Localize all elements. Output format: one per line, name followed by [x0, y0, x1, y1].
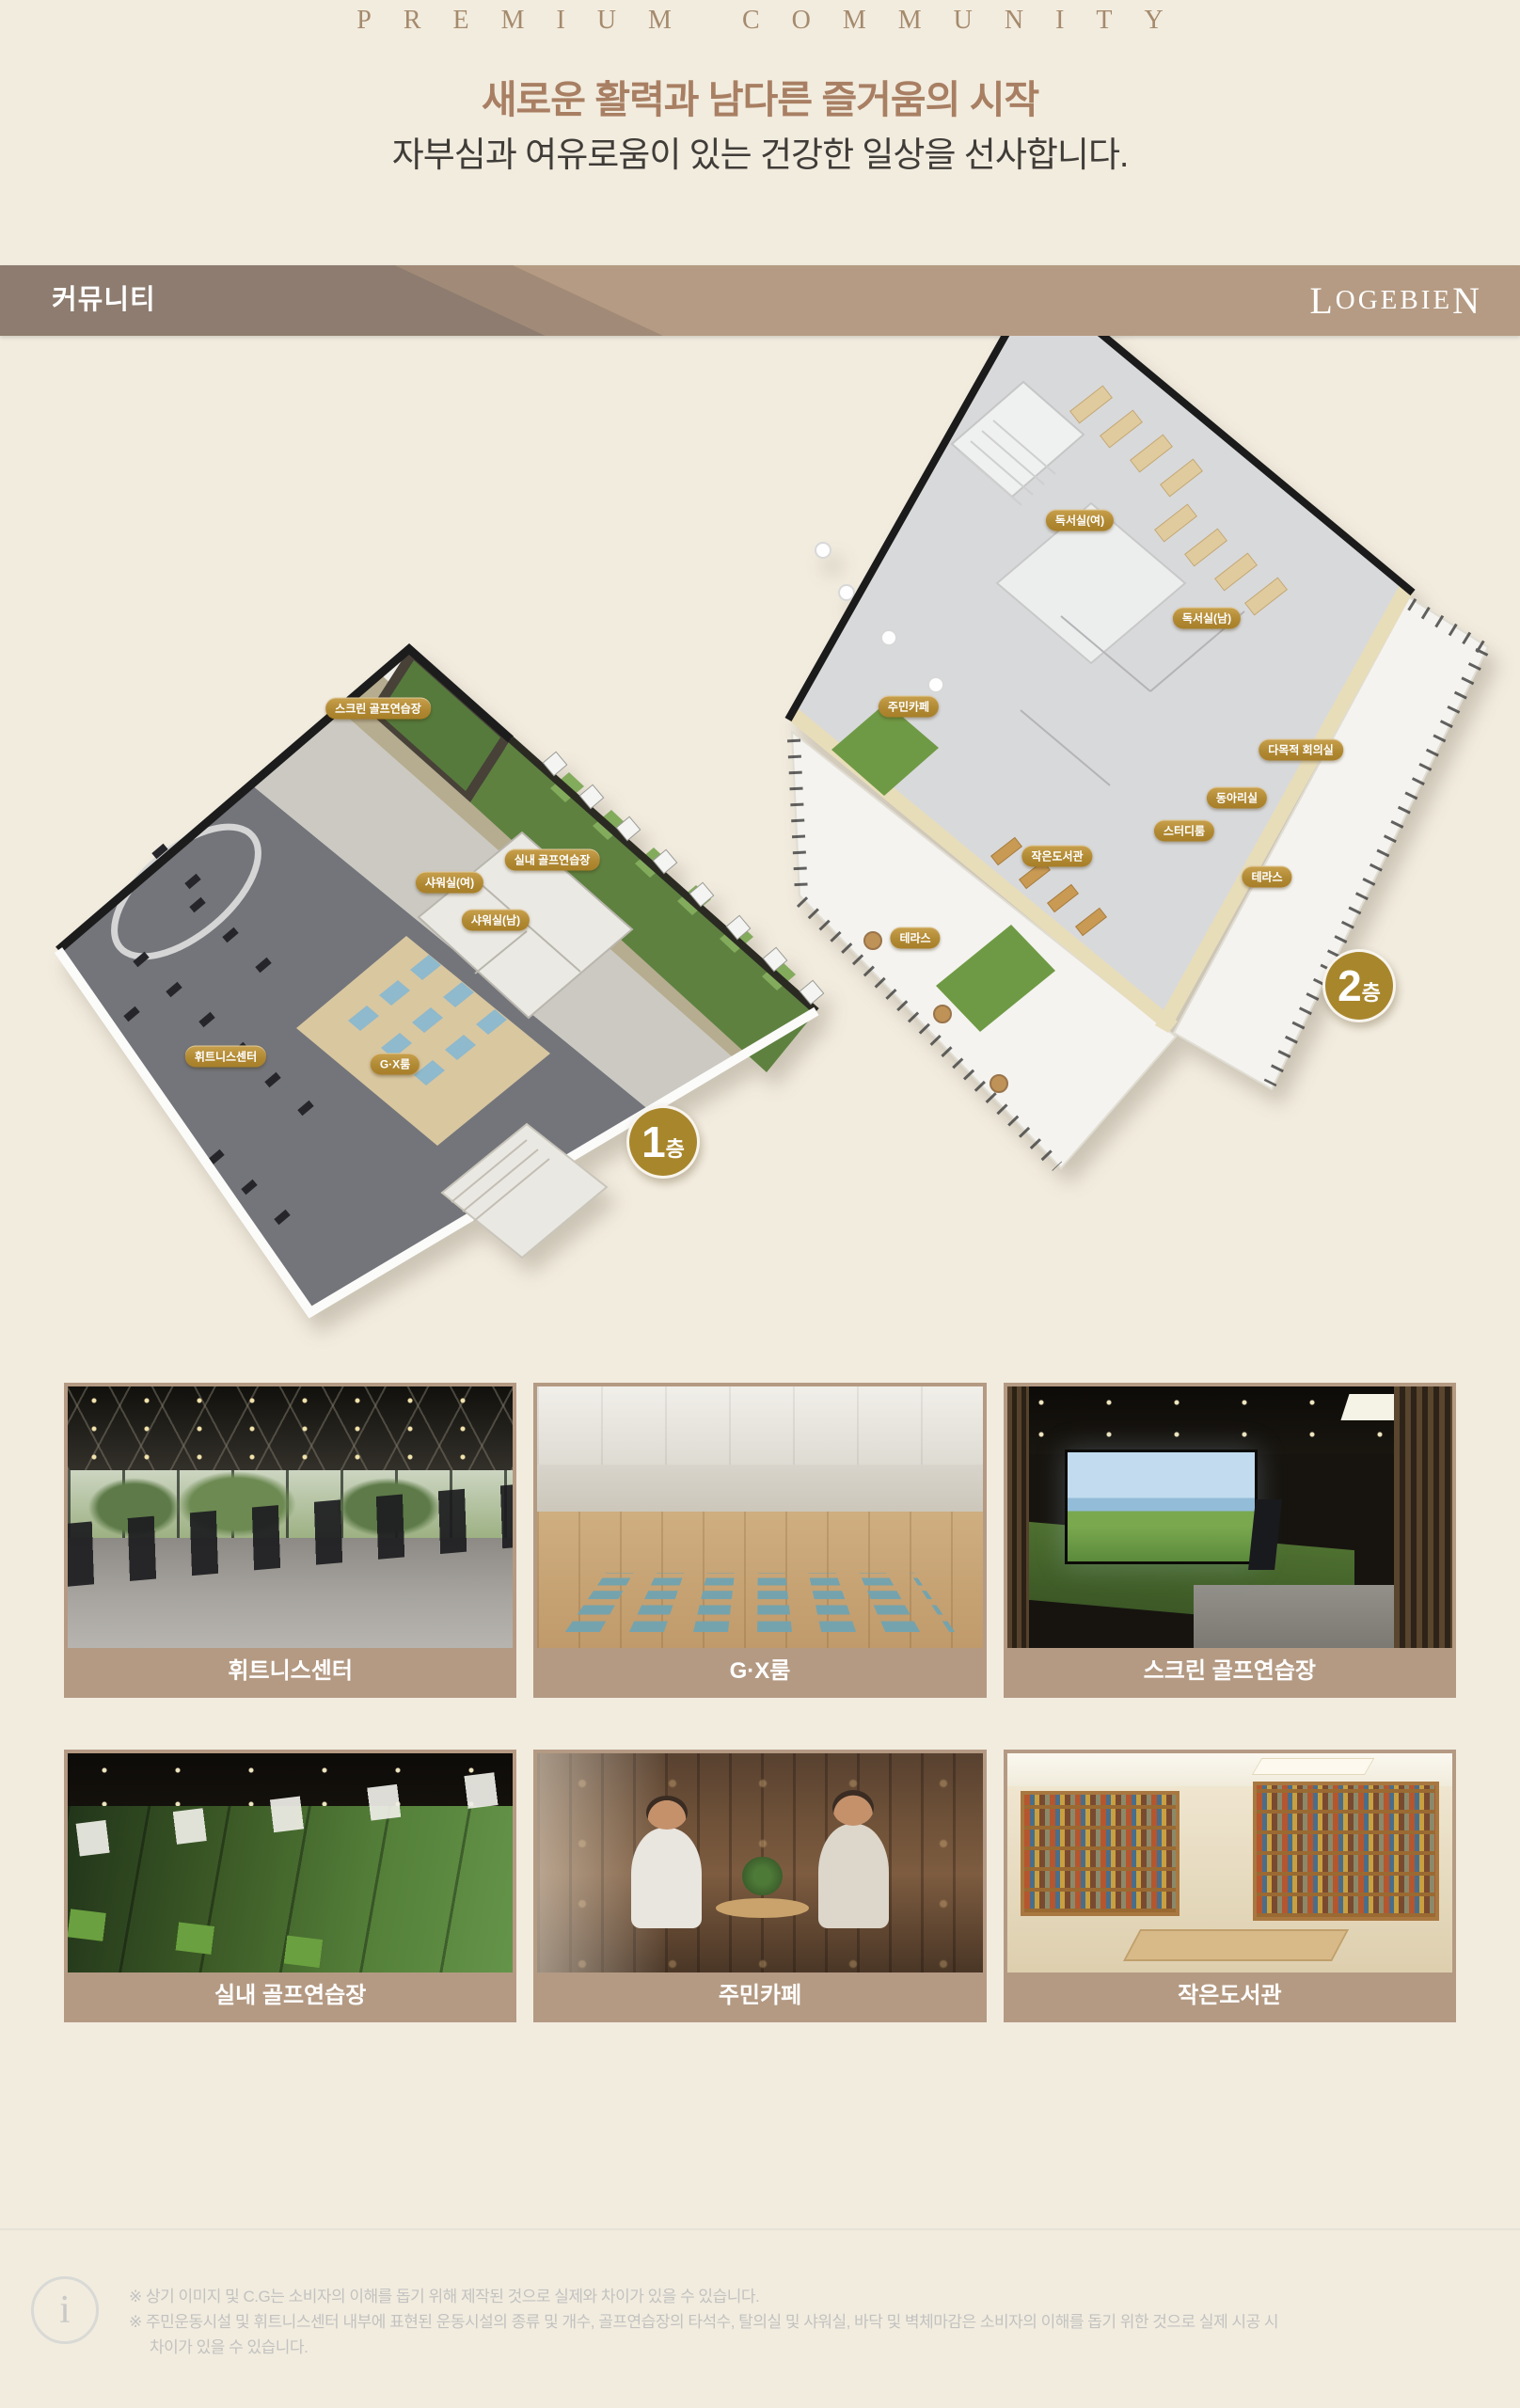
logo-letters-mid: OGEBIE: [1336, 265, 1452, 336]
plan-label-shower-women: 샤워실(여): [416, 872, 483, 894]
photo-reading-table: [1123, 1929, 1349, 1961]
photo-wood-slats-right: [1394, 1386, 1452, 1648]
photo-person-head: [832, 1790, 874, 1826]
photo-caption: G·X룸: [537, 1648, 982, 1694]
floorplan-section: 스크린 골프연습장 실내 골프연습장 샤워실(여) 샤워실(남) 휘트니스센터 …: [0, 336, 1520, 1386]
plan-label-gx-room: G·X룸: [371, 1053, 420, 1075]
floor1-badge-unit: 층: [666, 1133, 685, 1163]
plan-label-shower-men: 샤워실(남): [462, 910, 530, 931]
floor1-slab: [58, 649, 824, 1312]
fitness-center-photo: [68, 1386, 513, 1648]
photo-bookshelf-right: [1253, 1782, 1438, 1921]
gallery-card-gx-room: G·X룸: [533, 1383, 986, 1698]
residents-cafe-photo: [537, 1753, 982, 1972]
plan-label-reading-room-women: 독서실(여): [1046, 510, 1114, 531]
plan-label-reading-room-men: 독서실(남): [1173, 608, 1241, 629]
footnote-line-1: ※ 상기 이미지 및 C.G는 소비자의 이해를 돕기 위해 제작된 것으로 실…: [129, 2284, 1278, 2309]
plan-label-terrace-right: 테라스: [1242, 866, 1291, 888]
info-icon: i: [31, 2276, 99, 2344]
gallery-card-library: 작은도서관: [1004, 1750, 1456, 2022]
photo-person-left: [631, 1828, 703, 1928]
photo-ceiling: [68, 1386, 513, 1470]
photo-caption: 스크린 골프연습장: [1007, 1648, 1452, 1694]
footnotes: ※ 상기 이미지 및 C.G는 소비자의 이해를 돕기 위해 제작된 것으로 실…: [129, 2284, 1278, 2360]
page-title: 새로운 활력과 남다른 즐거움의 시작: [0, 68, 1520, 124]
logebien-logo: LOGEBIEN: [1309, 265, 1482, 336]
gallery-card-cafe: 주민카페: [533, 1750, 986, 2022]
plan-label-multipurpose-room: 다목적 회의실: [1259, 739, 1343, 761]
gallery-card-driving-range: 실내 골프연습장: [64, 1750, 516, 2022]
plan-label-club-room: 동아리실: [1207, 787, 1267, 809]
photo-caption: 작은도서관: [1007, 1972, 1452, 2019]
floor1-badge: 1층: [626, 1105, 700, 1179]
photo-person-right: [818, 1824, 890, 1929]
photo-ceiling: [537, 1386, 982, 1465]
section-bar: 커뮤니티 LOGEBIEN: [0, 265, 1520, 336]
gallery-card-fitness: 휘트니스센터: [64, 1383, 516, 1698]
page-subtitle: 자부심과 여유로움이 있는 건강한 일상을 선사합니다.: [0, 126, 1520, 177]
floorplan-illustration: [0, 336, 1520, 1386]
photo-plant: [742, 1857, 783, 1896]
gx-room-photo: [537, 1386, 982, 1648]
photo-caption: 실내 골프연습장: [68, 1972, 513, 2019]
photo-golf-screen: [1065, 1450, 1258, 1565]
indoor-golf-range-photo: [68, 1753, 513, 1972]
photo-caption: 휘트니스센터: [68, 1648, 513, 1694]
section-bar-label: 커뮤니티: [52, 265, 156, 336]
photo-yoga-mats: [560, 1573, 960, 1640]
small-library-photo: [1007, 1753, 1452, 1972]
footer-divider: [0, 2228, 1520, 2230]
floor1-badge-number: 1: [641, 1120, 666, 1164]
footnote-line-3: 차이가 있을 수 있습니다.: [129, 2335, 1278, 2360]
gallery-card-screen-golf: 스크린 골프연습장: [1004, 1383, 1456, 1698]
logo-letter-last: N: [1452, 265, 1482, 336]
photo-bookshelf-left: [1021, 1791, 1180, 1917]
screen-golf-photo: [1007, 1386, 1452, 1648]
floor2-badge: 2층: [1322, 949, 1396, 1022]
footnote-line-2: ※ 주민운동시설 및 휘트니스센터 내부에 표현된 운동시설의 종류 및 개수,…: [129, 2309, 1278, 2335]
photo-person-head: [646, 1796, 688, 1830]
photo-wood-slats-left: [1007, 1386, 1030, 1648]
plan-label-indoor-golf: 실내 골프연습장: [505, 849, 600, 871]
floor2-slab: [788, 336, 1488, 1168]
plan-label-study-room: 스터디룸: [1154, 820, 1214, 842]
photo-wall: [537, 1465, 982, 1512]
floor2-badge-number: 2: [1338, 964, 1362, 1007]
premium-community-eyebrow: PREMIUM COMMUNITY: [0, 6, 1520, 36]
facility-gallery: 휘트니스센터 G·X룸 스크린 골프연습장 실내 골프연: [64, 1383, 1456, 2022]
plan-label-residents-cafe: 주민카페: [879, 696, 939, 718]
plan-label-fitness-center: 휘트니스센터: [185, 1046, 266, 1068]
photo-caption: 주민카페: [537, 1972, 982, 2019]
photo-table: [716, 1898, 809, 1918]
plan-label-small-library: 작은도서관: [1021, 846, 1092, 867]
plan-label-terrace-left: 테라스: [890, 927, 940, 949]
photo-light-panel: [1251, 1758, 1374, 1775]
floor2-badge-unit: 층: [1362, 976, 1381, 1006]
plan-label-screen-golf: 스크린 골프연습장: [325, 698, 431, 720]
logo-letter-first: L: [1309, 265, 1335, 336]
community-brochure-page: { "page": { "eyebrow": "PREMIUM COMMUNIT…: [0, 0, 1520, 2408]
